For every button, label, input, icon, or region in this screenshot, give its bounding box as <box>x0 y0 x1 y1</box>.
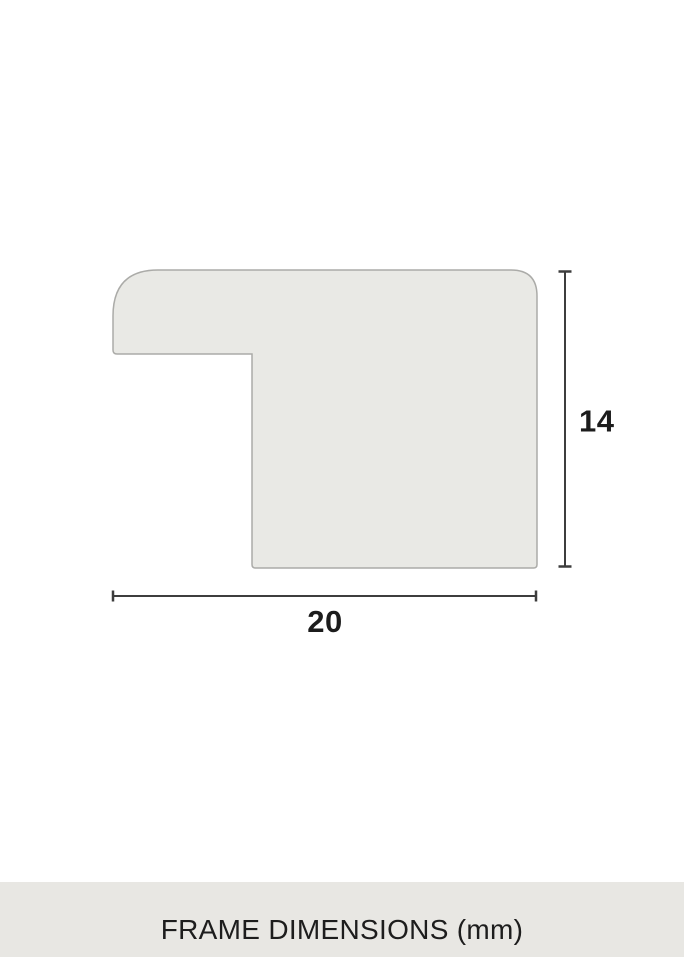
width-dimension-line <box>113 591 536 602</box>
footer-title: FRAME DIMENSIONS (mm) <box>0 914 684 946</box>
width-dimension-label: 20 <box>307 604 342 640</box>
page: 14 20 FRAME DIMENSIONS (mm) <box>0 0 684 957</box>
height-dimension-label: 14 <box>579 404 614 440</box>
footer-bar: FRAME DIMENSIONS (mm) <box>0 882 684 957</box>
frame-profile-shape <box>113 270 537 568</box>
height-dimension-line <box>559 272 572 567</box>
frame-profile-diagram: 14 20 <box>0 0 684 700</box>
frame-profile-svg <box>0 0 684 700</box>
